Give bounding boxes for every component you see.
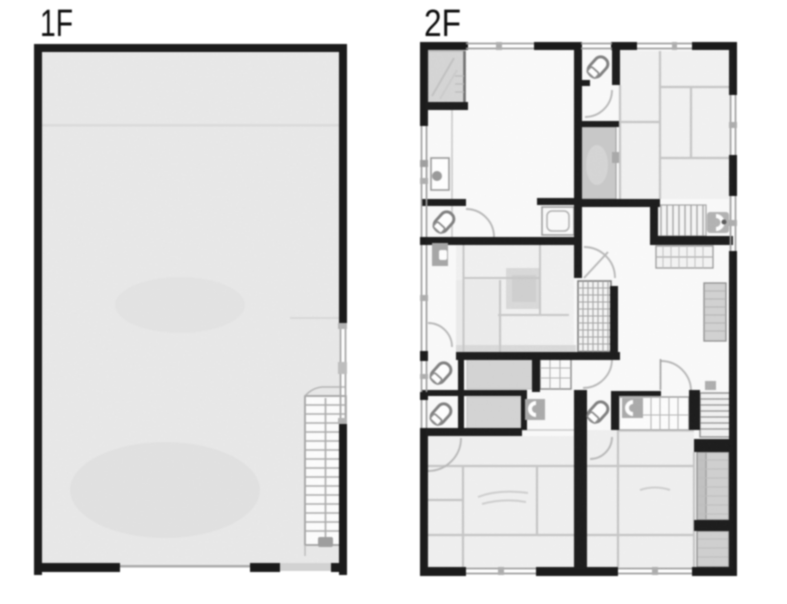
svg-text:2F: 2F	[424, 3, 461, 45]
svg-text:1F: 1F	[40, 3, 73, 45]
